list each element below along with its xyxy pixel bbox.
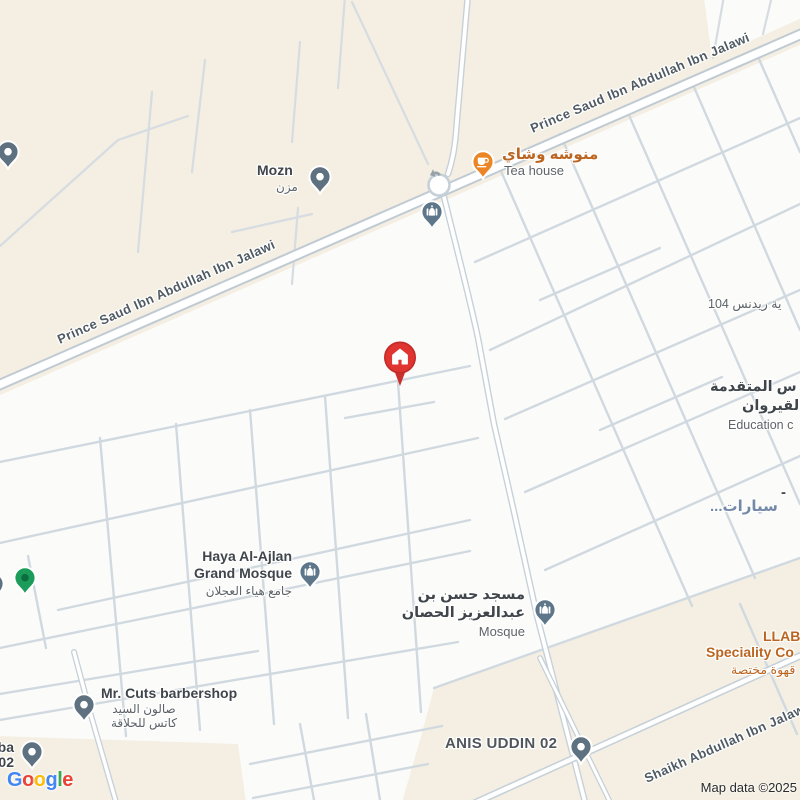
poi-label-hassan-mosque-ar2[interactable]: عبدالعزيز الحصان <box>400 605 525 621</box>
poi-label-education-en[interactable]: Education c <box>728 418 793 432</box>
coffee-cup-icon <box>472 151 493 179</box>
poi-label-education-ar2[interactable]: القيروان <box>742 398 800 414</box>
poi-label-llab-ar[interactable]: قهوة مختصة <box>731 662 795 677</box>
poi-label-anis-uddin[interactable]: ANIS UDDIN 02 <box>445 735 557 752</box>
place-pin-icon <box>0 141 19 169</box>
place-pin-edge-top-left[interactable] <box>0 140 20 170</box>
map-attribution: Map data ©2025 <box>701 780 797 795</box>
poi-label-mr-cuts[interactable]: Mr. Cuts barbershop <box>101 685 237 701</box>
place-pin-mr-cuts[interactable] <box>72 693 96 723</box>
poi-label-mozn-ar[interactable]: مزن <box>276 180 298 194</box>
mosque-pin-hassan[interactable] <box>533 598 557 628</box>
poi-label-llab-2[interactable]: Speciality Co <box>706 644 794 660</box>
red-house-marker-icon <box>385 342 415 386</box>
map-viewport[interactable]: Prince Saud Ibn Abdullah Ibn Jalawi Prin… <box>0 0 800 800</box>
google-logo-letter: o <box>34 769 46 791</box>
google-logo-letter: e <box>62 769 73 791</box>
place-pin-icon <box>309 166 330 194</box>
map-canvas[interactable] <box>0 0 800 800</box>
place-pin-icon <box>0 573 4 601</box>
poi-label-mozn[interactable]: Mozn <box>257 162 293 178</box>
place-pin-icon <box>21 741 42 769</box>
mosque-pin-haya[interactable] <box>298 560 322 590</box>
poi-label-cars[interactable]: سيارات... <box>710 497 778 515</box>
place-pin-edge-left[interactable] <box>0 572 5 602</box>
mosque-icon <box>299 561 320 589</box>
mosque-pin-unnamed[interactable] <box>420 200 444 230</box>
poi-label-tea-house-ar[interactable]: منوشه وشاي <box>502 145 598 163</box>
tea-house-pin[interactable] <box>471 150 495 180</box>
poi-label-education-ar1[interactable]: س المتقدمة <box>710 379 797 395</box>
poi-label-ba02-2[interactable]: 02 <box>0 754 14 770</box>
google-logo-letter: G <box>7 769 22 791</box>
poi-label-hassan-mosque-ar1[interactable]: مسجد حسن بن <box>405 587 525 603</box>
place-pin-icon <box>73 694 94 722</box>
google-logo[interactable]: Google <box>7 769 73 792</box>
poi-label-mr-cuts-ar1[interactable]: صالون السيد <box>100 702 188 716</box>
google-logo-letter: g <box>46 769 58 791</box>
poi-label-mr-cuts-ar2[interactable]: كاتس للحلاقة <box>100 716 188 730</box>
poi-label-haya-mosque-1[interactable]: Haya Al-Ajlan <box>180 548 292 564</box>
poi-label-residence-104[interactable]: ية ريدنس 104 <box>708 296 781 311</box>
mosque-icon <box>421 201 442 229</box>
poi-label-llab-1[interactable]: LLAB <box>763 628 800 644</box>
place-pin-mozn[interactable] <box>308 165 332 195</box>
poi-label-haya-mosque-ar[interactable]: جامع هياء العجلان <box>180 584 292 598</box>
poi-label-haya-mosque-2[interactable]: Grand Mosque <box>170 565 292 581</box>
poi-label-hassan-mosque-category[interactable]: Mosque <box>455 624 525 639</box>
google-logo-letter: o <box>22 769 34 791</box>
place-pin-icon <box>570 736 591 764</box>
poi-label-cars-prefix[interactable]: - <box>781 484 786 501</box>
destination-marker[interactable] <box>380 340 420 390</box>
poi-label-tea-house[interactable]: Tea house <box>504 163 564 178</box>
green-pin[interactable] <box>13 566 37 596</box>
poi-label-ba02-1[interactable]: ba <box>0 739 14 755</box>
mosque-icon <box>534 599 555 627</box>
green-pin-icon <box>14 567 35 595</box>
place-pin-anis-uddin[interactable] <box>569 735 593 765</box>
place-pin-ba02[interactable] <box>20 740 44 770</box>
